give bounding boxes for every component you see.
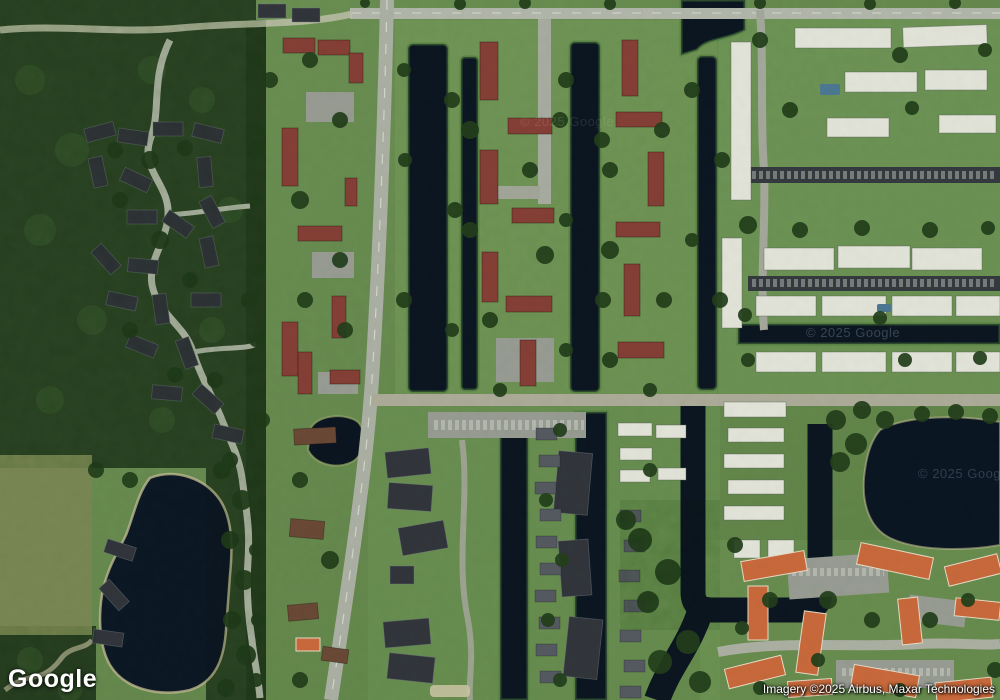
satellite-imagery [0,0,1000,700]
map-viewport[interactable]: © 2025 Google © 2025 Google © 2025 Goog … [0,0,1000,700]
terrain-texture [0,0,1000,700]
google-logo[interactable]: Google [8,665,97,694]
